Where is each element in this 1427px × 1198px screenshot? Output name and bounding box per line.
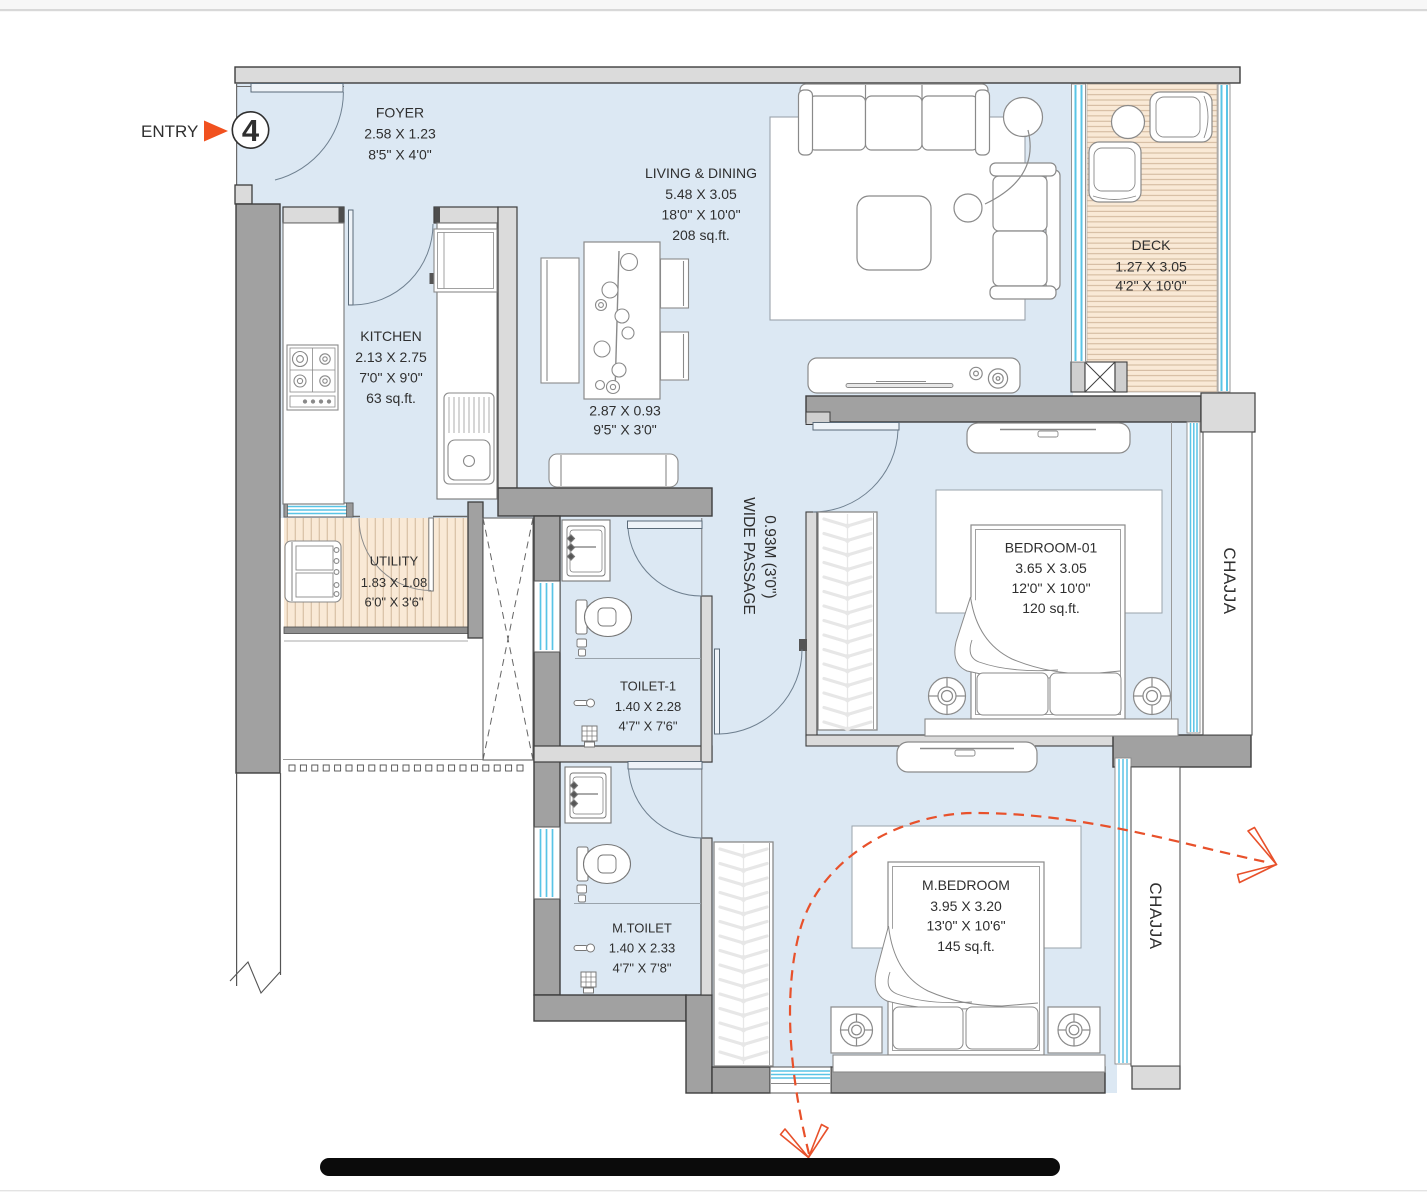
svg-text:7'0" X 9'0": 7'0" X 9'0" (359, 370, 423, 386)
svg-text:4: 4 (242, 113, 260, 148)
svg-text:DECK: DECK (1132, 237, 1172, 253)
svg-text:3.95 X 3.20: 3.95 X 3.20 (930, 898, 1002, 914)
svg-text:BEDROOM-01: BEDROOM-01 (1005, 540, 1098, 556)
svg-text:8'5" X 4'0": 8'5" X 4'0" (368, 147, 432, 163)
svg-text:2.87 X 0.93: 2.87 X 0.93 (589, 403, 661, 419)
svg-text:208 sq.ft.: 208 sq.ft. (672, 227, 730, 243)
svg-text:4'2" X 10'0": 4'2" X 10'0" (1115, 278, 1186, 294)
svg-text:4'7" X 7'6": 4'7" X 7'6" (618, 719, 677, 734)
svg-text:120 sq.ft.: 120 sq.ft. (1022, 600, 1080, 616)
svg-text:FOYER: FOYER (376, 105, 424, 121)
svg-text:6'0" X 3'6": 6'0" X 3'6" (364, 595, 423, 610)
svg-text:9'5" X 3'0": 9'5" X 3'0" (593, 422, 657, 438)
svg-text:1.83 X 1.08: 1.83 X 1.08 (361, 575, 428, 590)
svg-text:TOILET-1: TOILET-1 (620, 679, 676, 694)
svg-text:4'7" X 7'8": 4'7" X 7'8" (612, 961, 671, 976)
svg-text:CHAJJA: CHAJJA (1146, 882, 1165, 949)
svg-text:0.93M (3'0"): 0.93M (3'0") (761, 515, 778, 598)
svg-text:145 sq.ft.: 145 sq.ft. (937, 938, 995, 954)
svg-text:1.27 X 3.05: 1.27 X 3.05 (1115, 259, 1187, 275)
svg-text:18'0" X 10'0": 18'0" X 10'0" (661, 207, 740, 223)
svg-text:M.TOILET: M.TOILET (612, 921, 672, 936)
svg-text:13'0" X 10'6": 13'0" X 10'6" (926, 918, 1005, 934)
svg-text:3.65 X 3.05: 3.65 X 3.05 (1015, 560, 1087, 576)
svg-text:1.40 X 2.28: 1.40 X 2.28 (615, 699, 682, 714)
svg-text:2.58 X 1.23: 2.58 X 1.23 (364, 126, 436, 142)
svg-text:12'0" X 10'0": 12'0" X 10'0" (1011, 580, 1090, 596)
svg-text:UTILITY: UTILITY (370, 554, 419, 569)
svg-text:M.BEDROOM: M.BEDROOM (922, 877, 1010, 893)
svg-text:ENTRY: ENTRY (141, 122, 198, 141)
svg-text:2.13 X 2.75: 2.13 X 2.75 (355, 349, 427, 365)
svg-text:1.40 X 2.33: 1.40 X 2.33 (609, 941, 676, 956)
svg-text:5.48 X 3.05: 5.48 X 3.05 (665, 186, 737, 202)
svg-text:CHAJJA: CHAJJA (1220, 547, 1239, 614)
svg-text:WIDE PASSAGE: WIDE PASSAGE (740, 497, 757, 615)
svg-text:LIVING & DINING: LIVING & DINING (645, 165, 757, 181)
svg-text:63 sq.ft.: 63 sq.ft. (366, 390, 416, 406)
svg-text:KITCHEN: KITCHEN (360, 328, 421, 344)
